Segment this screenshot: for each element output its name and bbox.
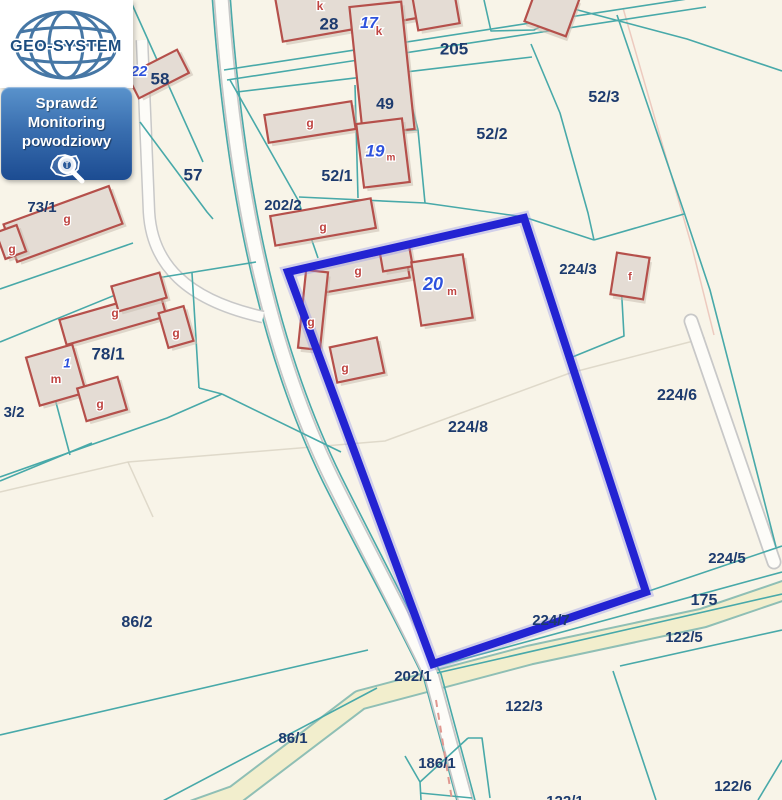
building-function-letter: f — [628, 271, 632, 283]
parcel-label: 86/1 — [278, 730, 307, 747]
address-number-label: 1 — [63, 355, 70, 370]
parcel-label: 58 — [151, 69, 170, 88]
flood-button-line2: Monitoring — [1, 113, 132, 132]
parcel-label: 186/1 — [418, 755, 456, 772]
building — [411, 254, 476, 330]
flood-button-line1: Sprawdź — [1, 94, 132, 113]
map-viewport[interactable]: 282054952/252/352/15758202/273/13/278/12… — [0, 0, 782, 800]
geo-system-logo: GEO-SYSTEM — [0, 0, 133, 88]
parcel-label: 122/6 — [714, 778, 752, 795]
parcel-label: 52/1 — [321, 168, 352, 185]
parcel-label: 202/1 — [394, 668, 432, 685]
building-function-letter: m — [51, 372, 62, 386]
building-function-letter: g — [8, 242, 15, 256]
address-number-label: 17 — [360, 15, 379, 32]
building-function-letter: g — [306, 116, 313, 130]
building-function-letter: g — [307, 315, 314, 329]
building-function-letter: g — [172, 326, 179, 340]
parcel-label: 224/7 — [532, 612, 570, 629]
building-function-letter: g — [63, 212, 70, 226]
parcel-label: 86/2 — [121, 614, 152, 631]
parcel-label: 175 — [691, 592, 718, 609]
flood-monitoring-button[interactable]: Sprawdź Monitoring powodziowy — [1, 87, 132, 180]
building-function-letter: k — [317, 0, 324, 13]
parcel-label: 224/6 — [657, 387, 697, 404]
parcel-label: 78/1 — [91, 344, 124, 363]
logo-text: GEO-SYSTEM — [10, 38, 122, 55]
parcel-label: 57 — [184, 165, 203, 184]
parcel-label: 49 — [376, 96, 394, 113]
building-function-letter: m — [387, 153, 396, 164]
building-function-letter: g — [319, 220, 326, 234]
parcel-label: 3/2 — [4, 404, 25, 421]
building-function-letter: g — [354, 264, 361, 278]
parcel-label: 122/5 — [665, 629, 703, 646]
building-function-letter: g — [111, 306, 118, 320]
parcel-label: 122/3 — [505, 698, 543, 715]
parcel-label: 52/2 — [476, 126, 507, 143]
parcel-label: 224/5 — [708, 550, 746, 567]
parcel-label: 28 — [320, 14, 339, 33]
address-number-label: 19 — [366, 141, 385, 160]
parcel-label: 224/8 — [448, 419, 488, 436]
building-function-letter: g — [341, 361, 348, 375]
address-number-label: 20 — [422, 274, 443, 294]
parcel-label: 52/3 — [588, 89, 619, 106]
flood-button-line3: powodziowy — [1, 132, 132, 151]
building-function-letter: g — [96, 397, 103, 411]
parcel-label: 224/3 — [559, 261, 597, 278]
parcel-label: 122/1 — [546, 793, 584, 800]
parcel-label: 73/1 — [27, 199, 56, 216]
flood-monitoring-magnifier-icon — [45, 152, 89, 186]
building-function-letter: m — [447, 286, 457, 298]
globe-icon: GEO-SYSTEM — [0, 0, 133, 88]
parcel-label: 202/2 — [264, 197, 302, 214]
parcel-label: 205 — [440, 39, 468, 58]
